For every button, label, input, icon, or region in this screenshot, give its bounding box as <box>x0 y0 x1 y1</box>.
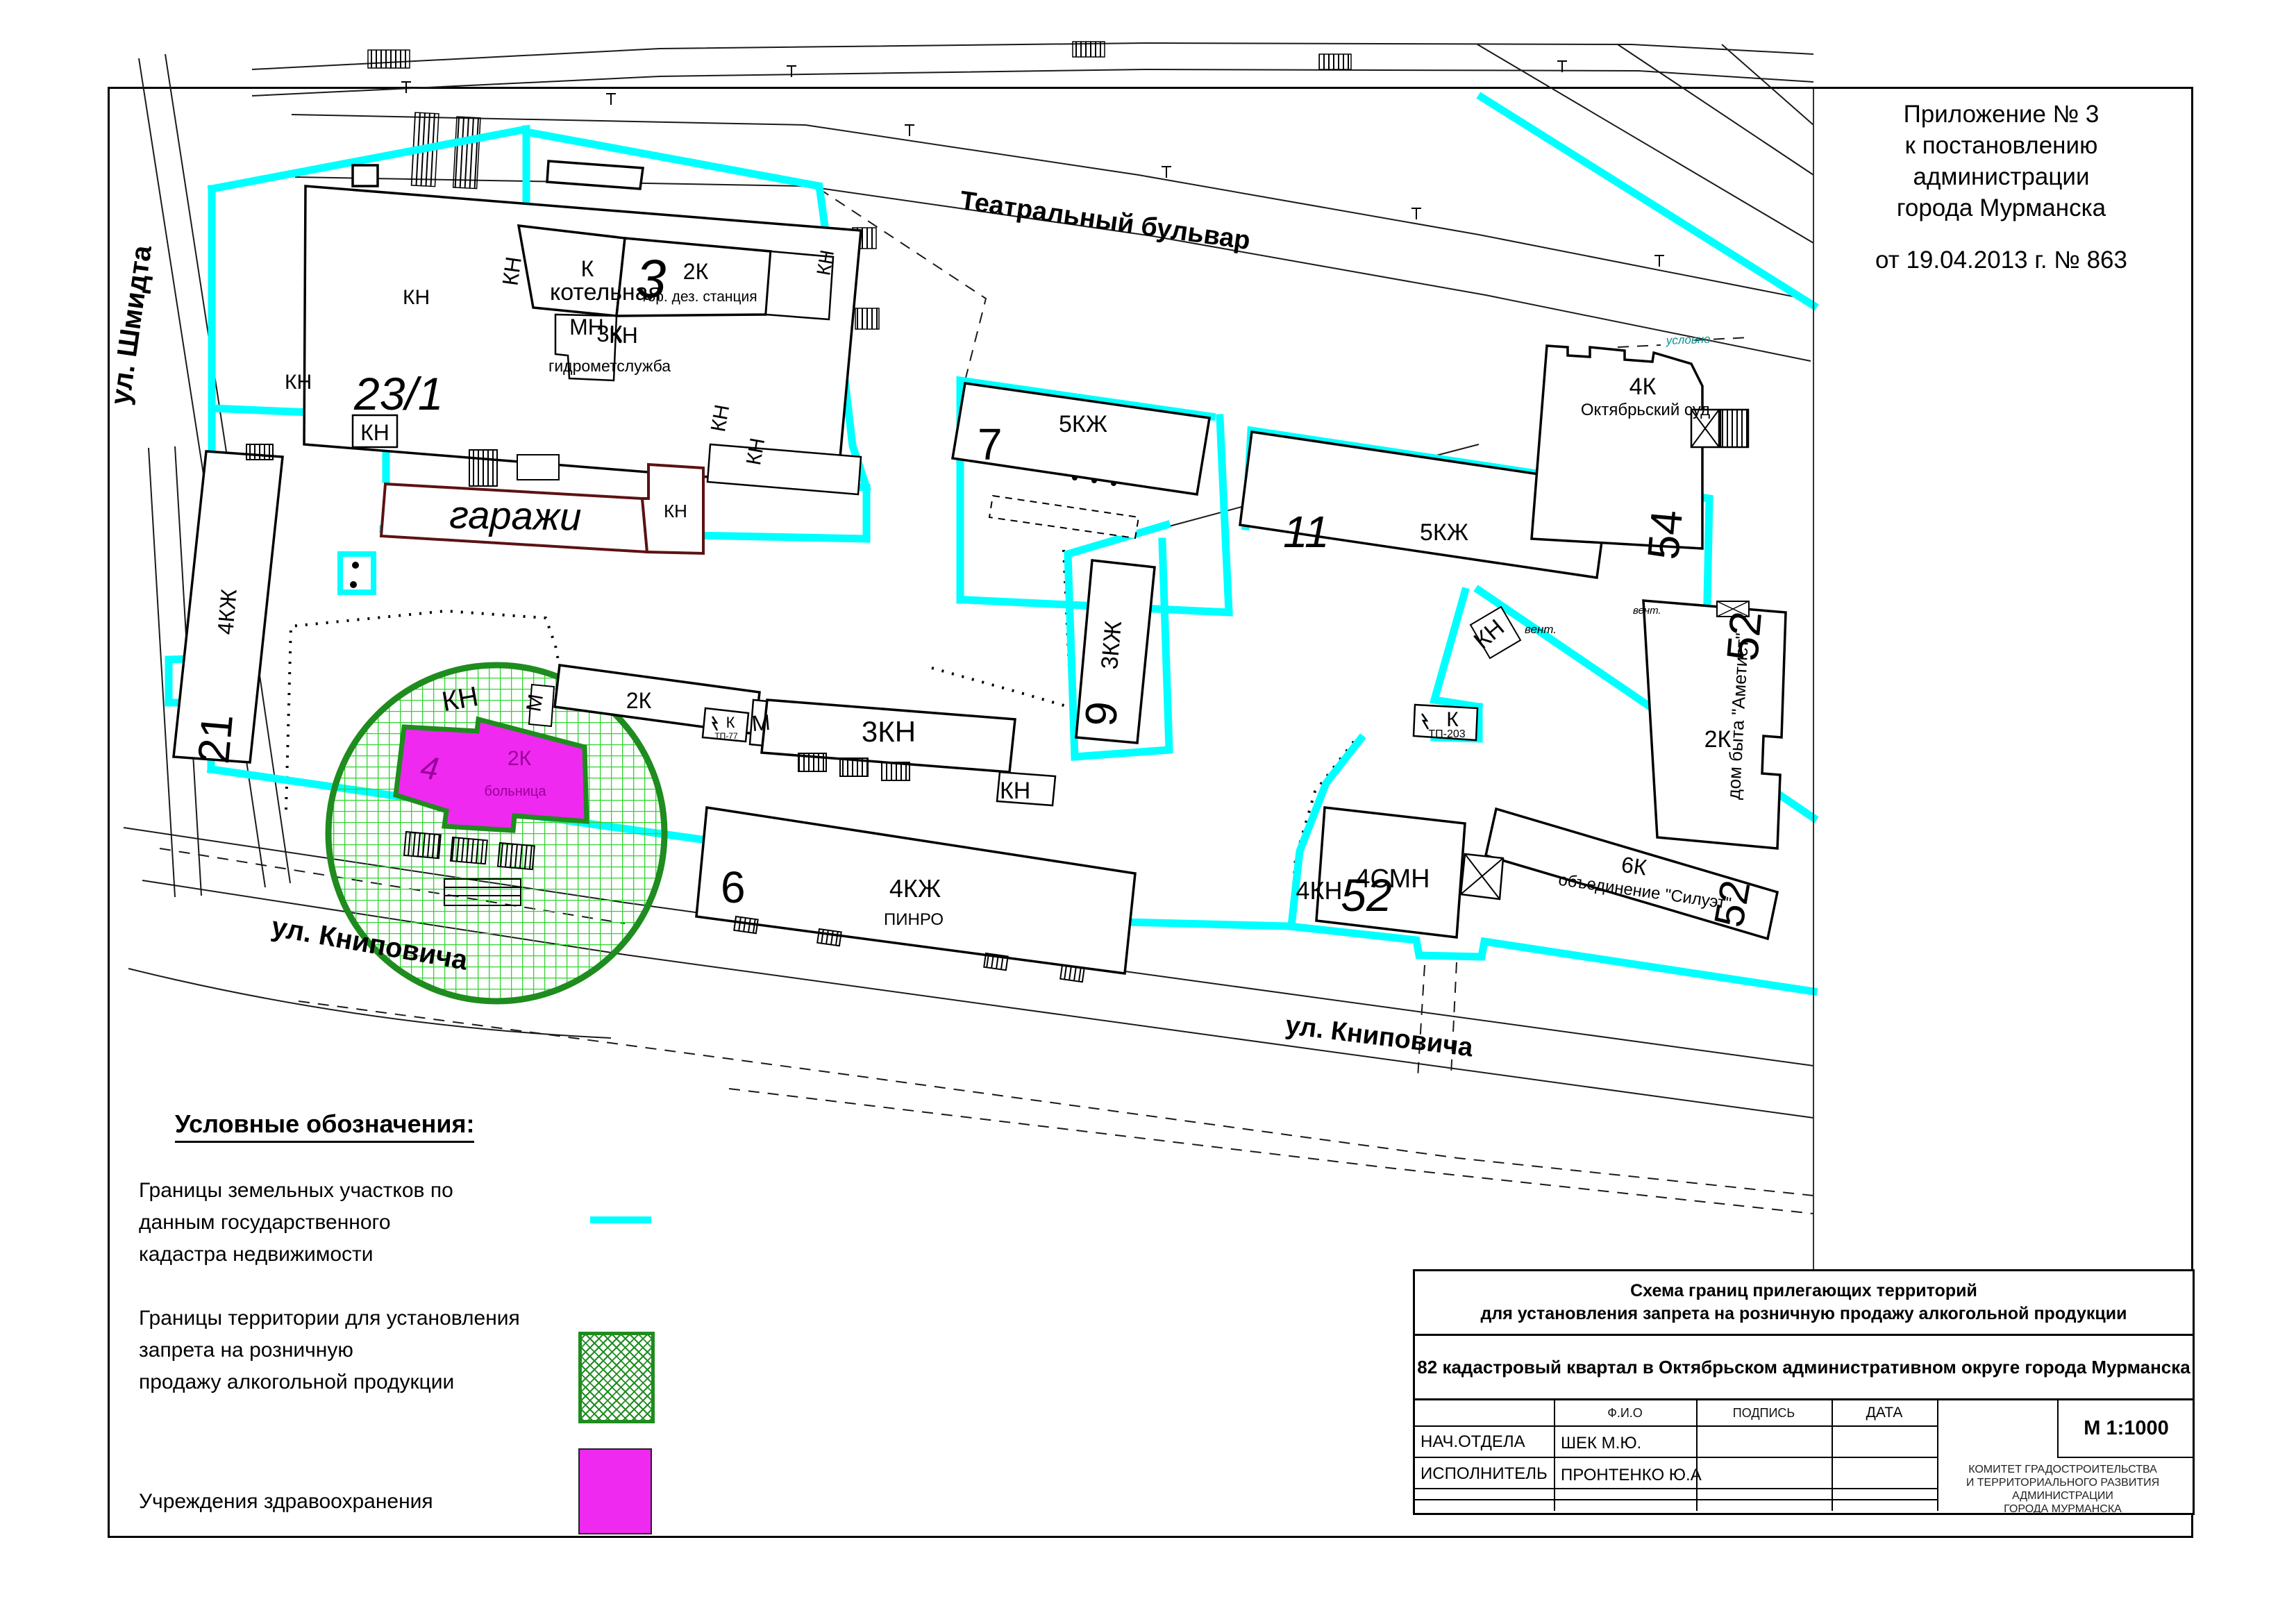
legend-item2-line2: запрета на розничную <box>139 1334 520 1366</box>
kn-11: КН <box>439 681 480 717</box>
ametist-num: 52 <box>1717 609 1771 662</box>
col-header-fio: Ф.И.О <box>1554 1406 1696 1421</box>
tp77-k: К <box>726 714 735 731</box>
legend-item1-line2: данным государственного <box>139 1207 453 1239</box>
annotation-block: Приложение № 3 к постановлению администр… <box>1819 99 2184 276</box>
legend-swatch-territory-hatch <box>578 1332 655 1423</box>
building-gidromet-box <box>353 165 378 186</box>
kn-5: КН <box>664 501 687 521</box>
table-divider <box>1937 1400 1938 1511</box>
kotelnaya-type: К <box>581 256 594 281</box>
title-block-title-line1: Схема границ прилегающих территорий <box>1415 1280 2193 1303</box>
uslovno-label: условно <box>1665 333 1710 347</box>
stair-symbol-2 <box>840 758 868 776</box>
committee-line1: КОМИТЕТ ГРАДОСТРОИТЕЛЬСТВА <box>1941 1463 2185 1476</box>
building-sud-annex-stripes <box>1720 410 1748 447</box>
gidromet-name: гидрометслужба <box>548 357 671 375</box>
legend-title: Условные обозначения: <box>175 1110 474 1143</box>
committee-line3: АДМИНИСТРАЦИИ <box>1941 1489 2185 1502</box>
row2-role: ИСПОЛНИТЕЛЬ <box>1421 1464 1548 1484</box>
legend-swatch-cadastral-line <box>590 1216 651 1223</box>
dez-name: гор. дез. станция <box>642 289 757 305</box>
sud-type: 4К <box>1629 374 1657 400</box>
street-teatralny: Театральный бульвар <box>958 186 1252 256</box>
table-divider <box>1415 1488 1937 1489</box>
annotation-line3: города Мурманска <box>1819 192 2184 224</box>
b11-num: 11 <box>1283 507 1329 557</box>
building-21-hatch <box>246 444 273 460</box>
pinro-entrance-1 <box>734 916 757 933</box>
table-divider <box>1415 1457 1937 1458</box>
scale-cell: М 1:1000 <box>2057 1400 2194 1458</box>
title-block: Схема границ прилегающих территорий для … <box>1413 1269 2195 1515</box>
hospital-type: 2К <box>508 747 532 770</box>
vent-1: вент. <box>1525 623 1557 636</box>
pinro-entrance-4 <box>1060 965 1084 982</box>
kn-4: КН <box>497 255 526 287</box>
street-shmidta: ул. Шмидта <box>105 243 158 407</box>
kn-8: КН <box>812 249 838 277</box>
annotation-date: от 19.04.2013 г. № 863 <box>1819 244 2184 276</box>
title-block-quarter-text: 82 кадастровый квартал в Октябрьском адм… <box>1417 1357 2190 1378</box>
legend-item2-line1: Границы территории для установления <box>139 1303 520 1334</box>
stair-symbol-1 <box>798 753 826 771</box>
col-header-podpis: ПОДПИСЬ <box>1696 1406 1832 1421</box>
legend-item-territory: Границы территории для установления запр… <box>139 1303 520 1398</box>
b21-type: 4КЖ <box>212 587 242 635</box>
hospital-name: больница <box>484 784 546 799</box>
m-1: М <box>751 710 771 736</box>
table-divider <box>1415 1499 1937 1500</box>
legend-swatch-health <box>578 1448 652 1534</box>
vent-2: вент. <box>1633 605 1661 617</box>
stair-symbol-3 <box>882 762 910 780</box>
kn-9: КН <box>1000 778 1030 804</box>
legend-item1-line1: Границы земельных участков по <box>139 1175 453 1207</box>
b2k-type: 2К <box>626 688 652 713</box>
b9-type: 3КЖ <box>1096 619 1127 670</box>
b3kn-type: 3КН <box>862 715 916 748</box>
col-header-data: ДАТА <box>1832 1405 1937 1421</box>
title-block-title-line2: для установления запрета на розничную пр… <box>1415 1303 2193 1325</box>
legend-item1-line3: кадастра недвижимости <box>139 1239 453 1271</box>
annotation-line2: к постановлению администрации <box>1819 130 2184 192</box>
committee-line4: ГОРОДА МУРМАНСКА <box>1941 1502 2185 1516</box>
pinro-num: 6 <box>721 862 746 912</box>
tp203-label: ТП-203 <box>1428 728 1465 740</box>
legend-item2-line3: продажу алкогольной продукции <box>139 1366 520 1398</box>
committee-line2: И ТЕРРИТОРИАЛЬНОГО РАЗВИТИЯ <box>1941 1476 2185 1489</box>
gidromet-num: 23/1 <box>353 368 443 419</box>
committ​ee-block: КОМИТЕТ ГРАДОСТРОИТЕЛЬСТВА И ТЕРРИТОРИАЛ… <box>1941 1463 2185 1516</box>
drawing-sheet: ул. Шмидта Театральный бульвар ул. Книпо… <box>0 0 2296 1624</box>
kn-2: КН <box>285 371 312 394</box>
kn-3: КН <box>360 420 389 445</box>
legend-item3-line1: Учреждения здравоохранения <box>139 1486 433 1518</box>
pinro-name: ПИНРО <box>884 910 944 929</box>
building-7-annex <box>989 496 1139 538</box>
b21-num: 21 <box>188 712 242 765</box>
tp77-label: ТП-77 <box>714 731 738 741</box>
row2-name: ПРОНТЕНКО Ю.А <box>1561 1466 1702 1485</box>
title-block-quarter: 82 кадастровый квартал в Октябрьском адм… <box>1415 1336 2193 1400</box>
legend-item-health: Учреждения здравоохранения <box>139 1486 433 1518</box>
title-block-table: Ф.И.О ПОДПИСЬ ДАТА НАЧ.ОТДЕЛА ШЕК М.Ю. И… <box>1415 1400 2193 1511</box>
smn-num: 52 <box>1341 869 1391 921</box>
mn-label: МН <box>569 315 604 340</box>
kn-7: КН <box>742 436 769 467</box>
gidromet-annex-south <box>469 450 497 486</box>
sud-name: Октябрьский суд <box>1581 401 1710 419</box>
kn-kotelnaya: КН <box>609 323 638 348</box>
gidromet-annex-south2 <box>517 455 559 480</box>
kn-6: КН <box>707 403 734 433</box>
pinro-entrance-2 <box>817 929 841 946</box>
b7-num: 7 <box>978 419 1003 469</box>
legend-item-cadastral: Границы земельных участков по данным гос… <box>139 1175 453 1271</box>
dez-type: 2К <box>683 259 709 284</box>
garages-name: гаражи <box>449 492 582 538</box>
siluet-num: 52 <box>1705 877 1759 930</box>
sud-num: 54 <box>1638 508 1692 561</box>
annotation-line1: Приложение № 3 <box>1819 99 2184 130</box>
siluet-type: 6К <box>1620 852 1648 880</box>
kn-1: КН <box>403 286 430 309</box>
smn-extra: 4КН <box>1296 876 1343 905</box>
b9-num: 9 <box>1075 699 1128 728</box>
b7-type: 5КЖ <box>1059 411 1107 437</box>
title-block-title: Схема границ прилегающих территорий для … <box>1415 1271 2193 1336</box>
row1-role: НАЧ.ОТДЕЛА <box>1421 1432 1525 1452</box>
pinro-type: 4КЖ <box>889 874 941 903</box>
building-gidromet-annex <box>547 161 643 189</box>
row1-name: ШЕК М.Ю. <box>1561 1434 1641 1453</box>
b11-type: 5КЖ <box>1420 519 1468 546</box>
pinro-entrance-3 <box>984 953 1007 970</box>
table-divider <box>1415 1425 1937 1427</box>
street-knipovicha-2: ул. Книповича <box>1284 1011 1475 1063</box>
